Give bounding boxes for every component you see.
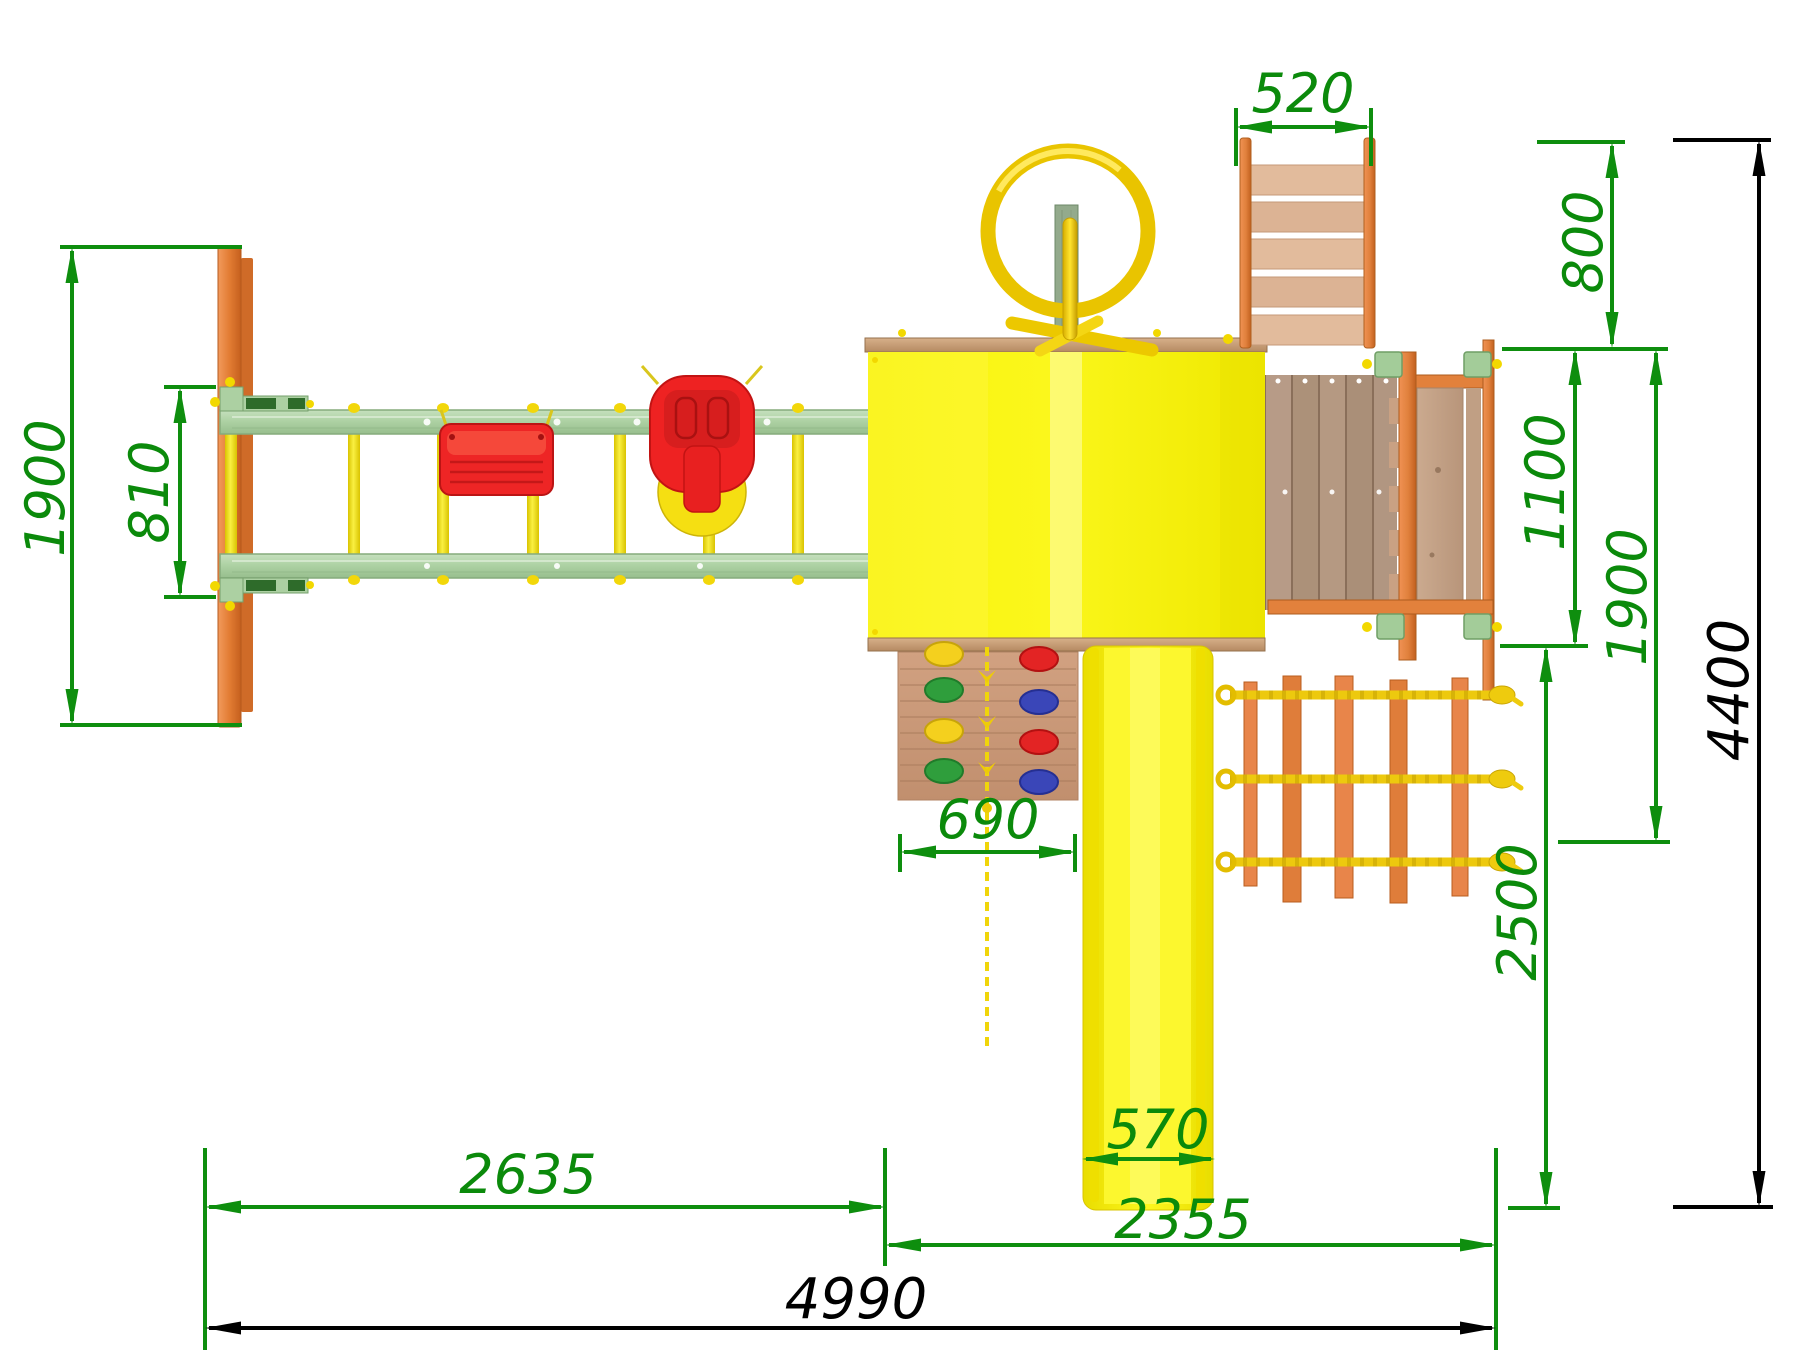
dim-rear-depth-2500: 2500 [1486, 646, 1560, 1208]
frame-rail-bottom [1268, 600, 1493, 614]
slide-rail-left [1090, 648, 1099, 1202]
dim-label-slide-width: 570 [1106, 1098, 1209, 1161]
roof-ridge-highlight [1050, 352, 1082, 638]
swing-beam-rear [220, 554, 875, 578]
dim-label-total-depth: 4400 [1697, 619, 1762, 762]
frame-post-right [1483, 340, 1494, 700]
dim-left-section-2635: 2635 [205, 1143, 885, 1350]
beam-wall-clamp-front [220, 387, 308, 411]
dim-label-platform-depth: 1100 [1514, 413, 1577, 550]
dim-swing-bay-810: 810 [118, 387, 216, 597]
baby-swing-seat [642, 366, 762, 536]
dim-label-swing-bay: 810 [118, 440, 181, 543]
dim-label-right-section: 2355 [1114, 1188, 1251, 1251]
dim-platform-depth-1100: 1100 [1500, 349, 1588, 646]
dim-label-total-length: 4990 [785, 1267, 928, 1332]
dim-label-ladder-depth: 800 [1552, 190, 1615, 293]
rope-net-bridge [1218, 676, 1521, 903]
tower-roof [865, 329, 1267, 651]
ring-pole [1063, 218, 1077, 340]
dim-ladder-width-520: 520 [1236, 62, 1371, 166]
dim-label-rear-depth: 2500 [1486, 843, 1549, 980]
gym-ring-assembly [959, 122, 1178, 351]
rear-ladder [1223, 138, 1375, 348]
dim-label-right-overall: 1900 [1596, 528, 1659, 665]
dim-label-ladder-width: 520 [1251, 62, 1354, 125]
beam-wall-clamp-rear [220, 578, 308, 602]
dim-label-climbing-wall: 690 [936, 788, 1039, 851]
dim-label-left-section: 2635 [459, 1143, 596, 1206]
dim-ladder-depth-800: 800 [1502, 142, 1668, 349]
net-ropes [1218, 686, 1521, 871]
main-deck [1265, 375, 1399, 610]
dim-label-left-overall: 1900 [14, 419, 77, 556]
dim-total-length-4990: 4990 [205, 1267, 1496, 1335]
ladder-rail-right [1364, 138, 1375, 348]
drawing-canvas: 1900 810 520 800 1100 1900 [0, 0, 1800, 1353]
dim-total-depth-4400: 4400 [1673, 140, 1773, 1207]
ladder-rail-left [1240, 138, 1251, 348]
playground-top-view-drawing: 1900 810 520 800 1100 1900 [0, 0, 1800, 1353]
